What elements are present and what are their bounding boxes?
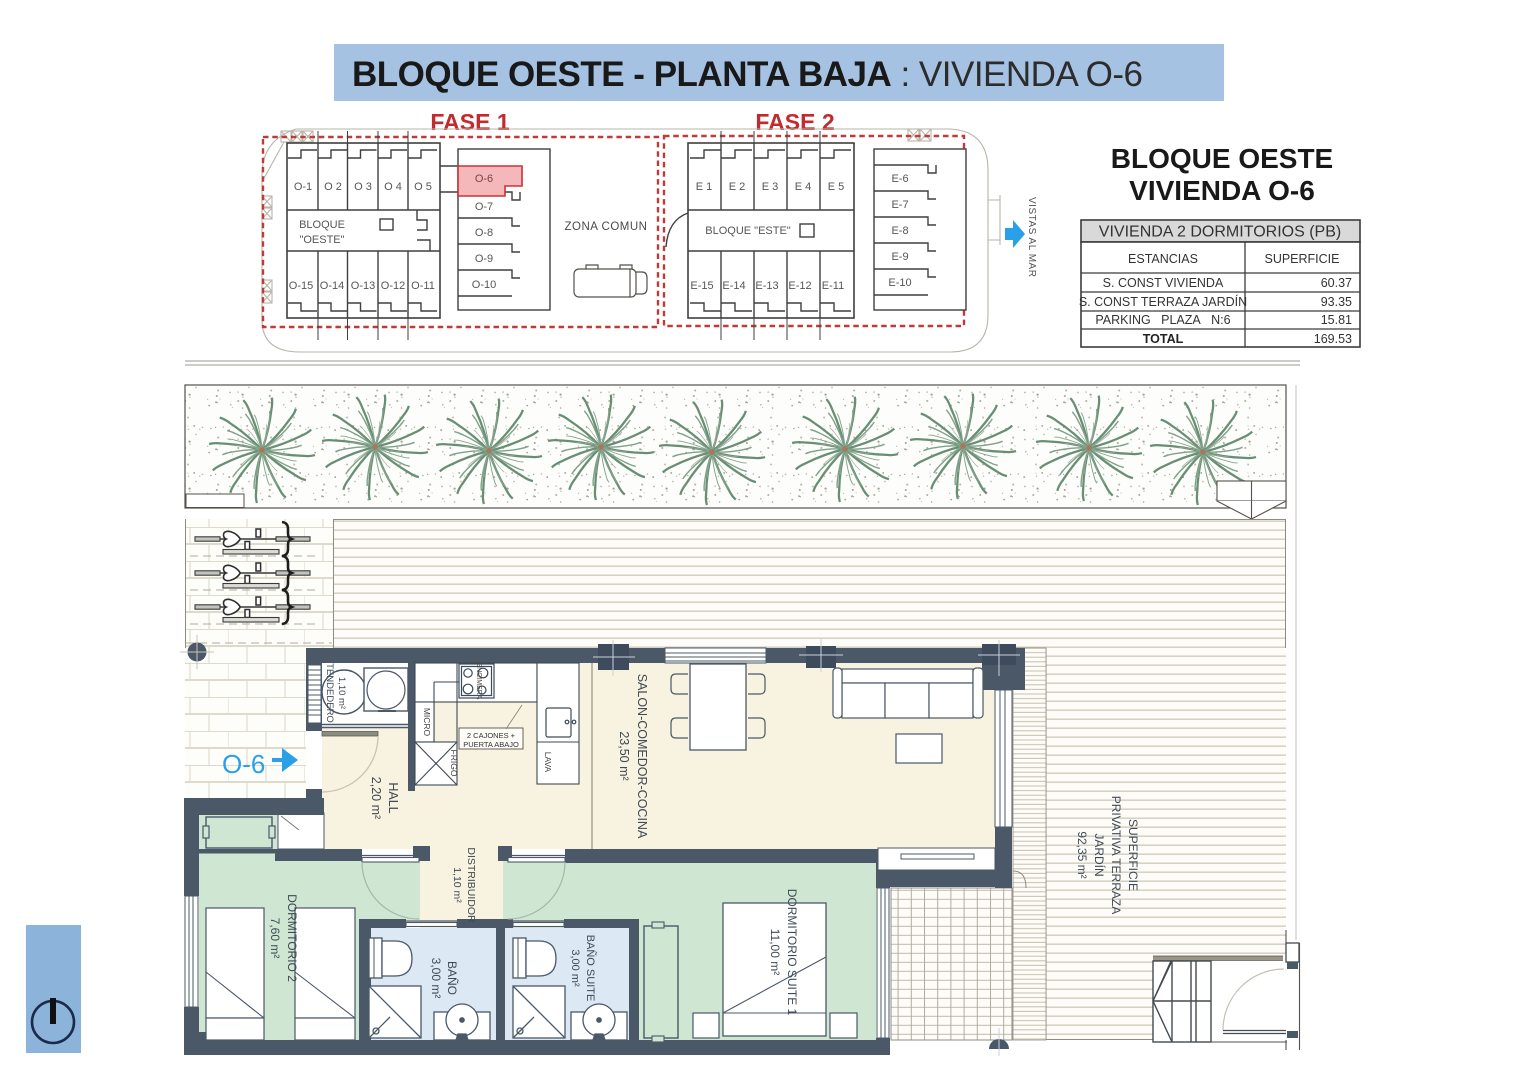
svg-text:E 5: E 5 [828, 181, 845, 193]
svg-text:FRIGO: FRIGO [449, 750, 459, 777]
svg-text:BLOQUE: BLOQUE [299, 219, 345, 231]
svg-text:O 5: O 5 [414, 181, 432, 193]
svg-text:BLOQUE OESTE: BLOQUE OESTE [1111, 143, 1333, 174]
svg-text:PRIVATIVA TERRAZA: PRIVATIVA TERRAZA [1109, 796, 1123, 914]
svg-text:E-6: E-6 [891, 173, 908, 185]
svg-text:E-7: E-7 [891, 199, 908, 211]
svg-text:S. CONST TERRAZA JARDÍN: S. CONST TERRAZA JARDÍN [1079, 294, 1247, 309]
svg-text:O-11: O-11 [411, 280, 435, 292]
svg-text:E-8: E-8 [891, 225, 908, 237]
svg-text:3,00 m²: 3,00 m² [569, 949, 581, 987]
svg-text:11,00 m²: 11,00 m² [768, 929, 782, 975]
svg-text:TOTAL: TOTAL [1143, 332, 1184, 346]
svg-text:"OESTE": "OESTE" [299, 234, 344, 246]
svg-text:O-10: O-10 [472, 279, 496, 291]
svg-text:O-8: O-8 [475, 227, 493, 239]
svg-text:FASE 1: FASE 1 [430, 109, 509, 135]
svg-text:SUPERFICIE: SUPERFICIE [1126, 819, 1140, 891]
svg-text:ENCIMERA: ENCIMERA [475, 663, 482, 700]
svg-text:O-6: O-6 [222, 749, 265, 779]
svg-text:O 3: O 3 [354, 181, 372, 193]
svg-text:3,00 m²: 3,00 m² [429, 958, 443, 999]
svg-text:7,60 m²: 7,60 m² [268, 918, 282, 959]
svg-text:E-10: E-10 [888, 277, 911, 289]
svg-text:DORMITORIO SUITE 1: DORMITORIO SUITE 1 [785, 889, 799, 1016]
svg-text:O-6: O-6 [475, 173, 493, 185]
svg-text:E-9: E-9 [891, 251, 908, 263]
svg-text:O-12: O-12 [381, 280, 405, 292]
svg-text:PUERTA ABAJO: PUERTA ABAJO [463, 740, 519, 749]
svg-text:E 4: E 4 [795, 181, 812, 193]
svg-text:DISTRIBUIDOR: DISTRIBUIDOR [465, 847, 477, 923]
svg-text:E-12: E-12 [788, 280, 811, 292]
svg-text:BLOQUE OESTE - PLANTA BAJA : V: BLOQUE OESTE - PLANTA BAJA : VIVIENDA O-… [352, 55, 1142, 94]
svg-text:93.35: 93.35 [1321, 295, 1352, 309]
svg-text:E-13: E-13 [755, 280, 778, 292]
svg-text:DORMITORIO 2: DORMITORIO 2 [285, 894, 299, 982]
svg-text:SALON-COMEDOR-COCINA: SALON-COMEDOR-COCINA [635, 674, 649, 839]
svg-text:PARKING PLAZA N:6: PARKING PLAZA N:6 [1095, 313, 1230, 327]
svg-text:92,35 m²: 92,35 m² [1075, 831, 1089, 878]
svg-text:BAÑO SUITE: BAÑO SUITE [584, 935, 597, 1002]
svg-text:HALL: HALL [386, 782, 400, 813]
svg-text:LAVA: LAVA [543, 752, 553, 773]
svg-text:2 CAJONES +: 2 CAJONES + [467, 731, 516, 740]
svg-text:E 3: E 3 [762, 181, 779, 193]
svg-text:E-14: E-14 [722, 280, 745, 292]
svg-text:TENDEDERO: TENDEDERO [324, 663, 335, 723]
svg-text:O-7: O-7 [475, 201, 493, 213]
svg-text:ZONA COMUN: ZONA COMUN [565, 221, 648, 233]
svg-text:O-15: O-15 [289, 280, 313, 292]
svg-text:E-11: E-11 [822, 280, 844, 292]
svg-text:S. CONST VIVIENDA: S. CONST VIVIENDA [1103, 276, 1224, 290]
svg-text:1,10 m²: 1,10 m² [451, 867, 463, 903]
svg-text:JARDÍN: JARDÍN [1092, 833, 1107, 876]
svg-text:15.81: 15.81 [1321, 313, 1352, 327]
svg-text:E 2: E 2 [729, 181, 746, 193]
svg-text:ESTANCIAS: ESTANCIAS [1128, 252, 1198, 266]
svg-text:O-9: O-9 [475, 253, 493, 265]
svg-text:60.37: 60.37 [1321, 276, 1352, 290]
svg-text:E-15: E-15 [690, 280, 713, 292]
svg-text:BAÑO: BAÑO [445, 961, 459, 995]
svg-text:O 2: O 2 [324, 181, 342, 193]
svg-text:FASE 2: FASE 2 [755, 109, 834, 135]
svg-text:VIVIENDA O-6: VIVIENDA O-6 [1129, 175, 1315, 206]
svg-text:O-13: O-13 [351, 280, 375, 292]
svg-text:MICRO: MICRO [422, 708, 432, 737]
svg-text:1,10 m²: 1,10 m² [336, 677, 347, 709]
svg-text:2,20 m²: 2,20 m² [369, 777, 383, 819]
svg-text:O-14: O-14 [320, 280, 344, 292]
svg-text:O-1: O-1 [294, 181, 312, 193]
svg-text:23,50 m²: 23,50 m² [617, 731, 631, 780]
svg-text:SUPERFICIE: SUPERFICIE [1264, 252, 1339, 266]
svg-text:VIVIENDA 2 DORMITORIOS (PB): VIVIENDA 2 DORMITORIOS (PB) [1099, 224, 1341, 241]
svg-text:VISTAS AL MAR: VISTAS AL MAR [1026, 197, 1037, 277]
svg-text:E 1: E 1 [696, 181, 713, 193]
svg-text:169.53: 169.53 [1314, 332, 1352, 346]
svg-text:O 4: O 4 [384, 181, 402, 193]
svg-text:BLOQUE "ESTE": BLOQUE "ESTE" [705, 225, 791, 237]
